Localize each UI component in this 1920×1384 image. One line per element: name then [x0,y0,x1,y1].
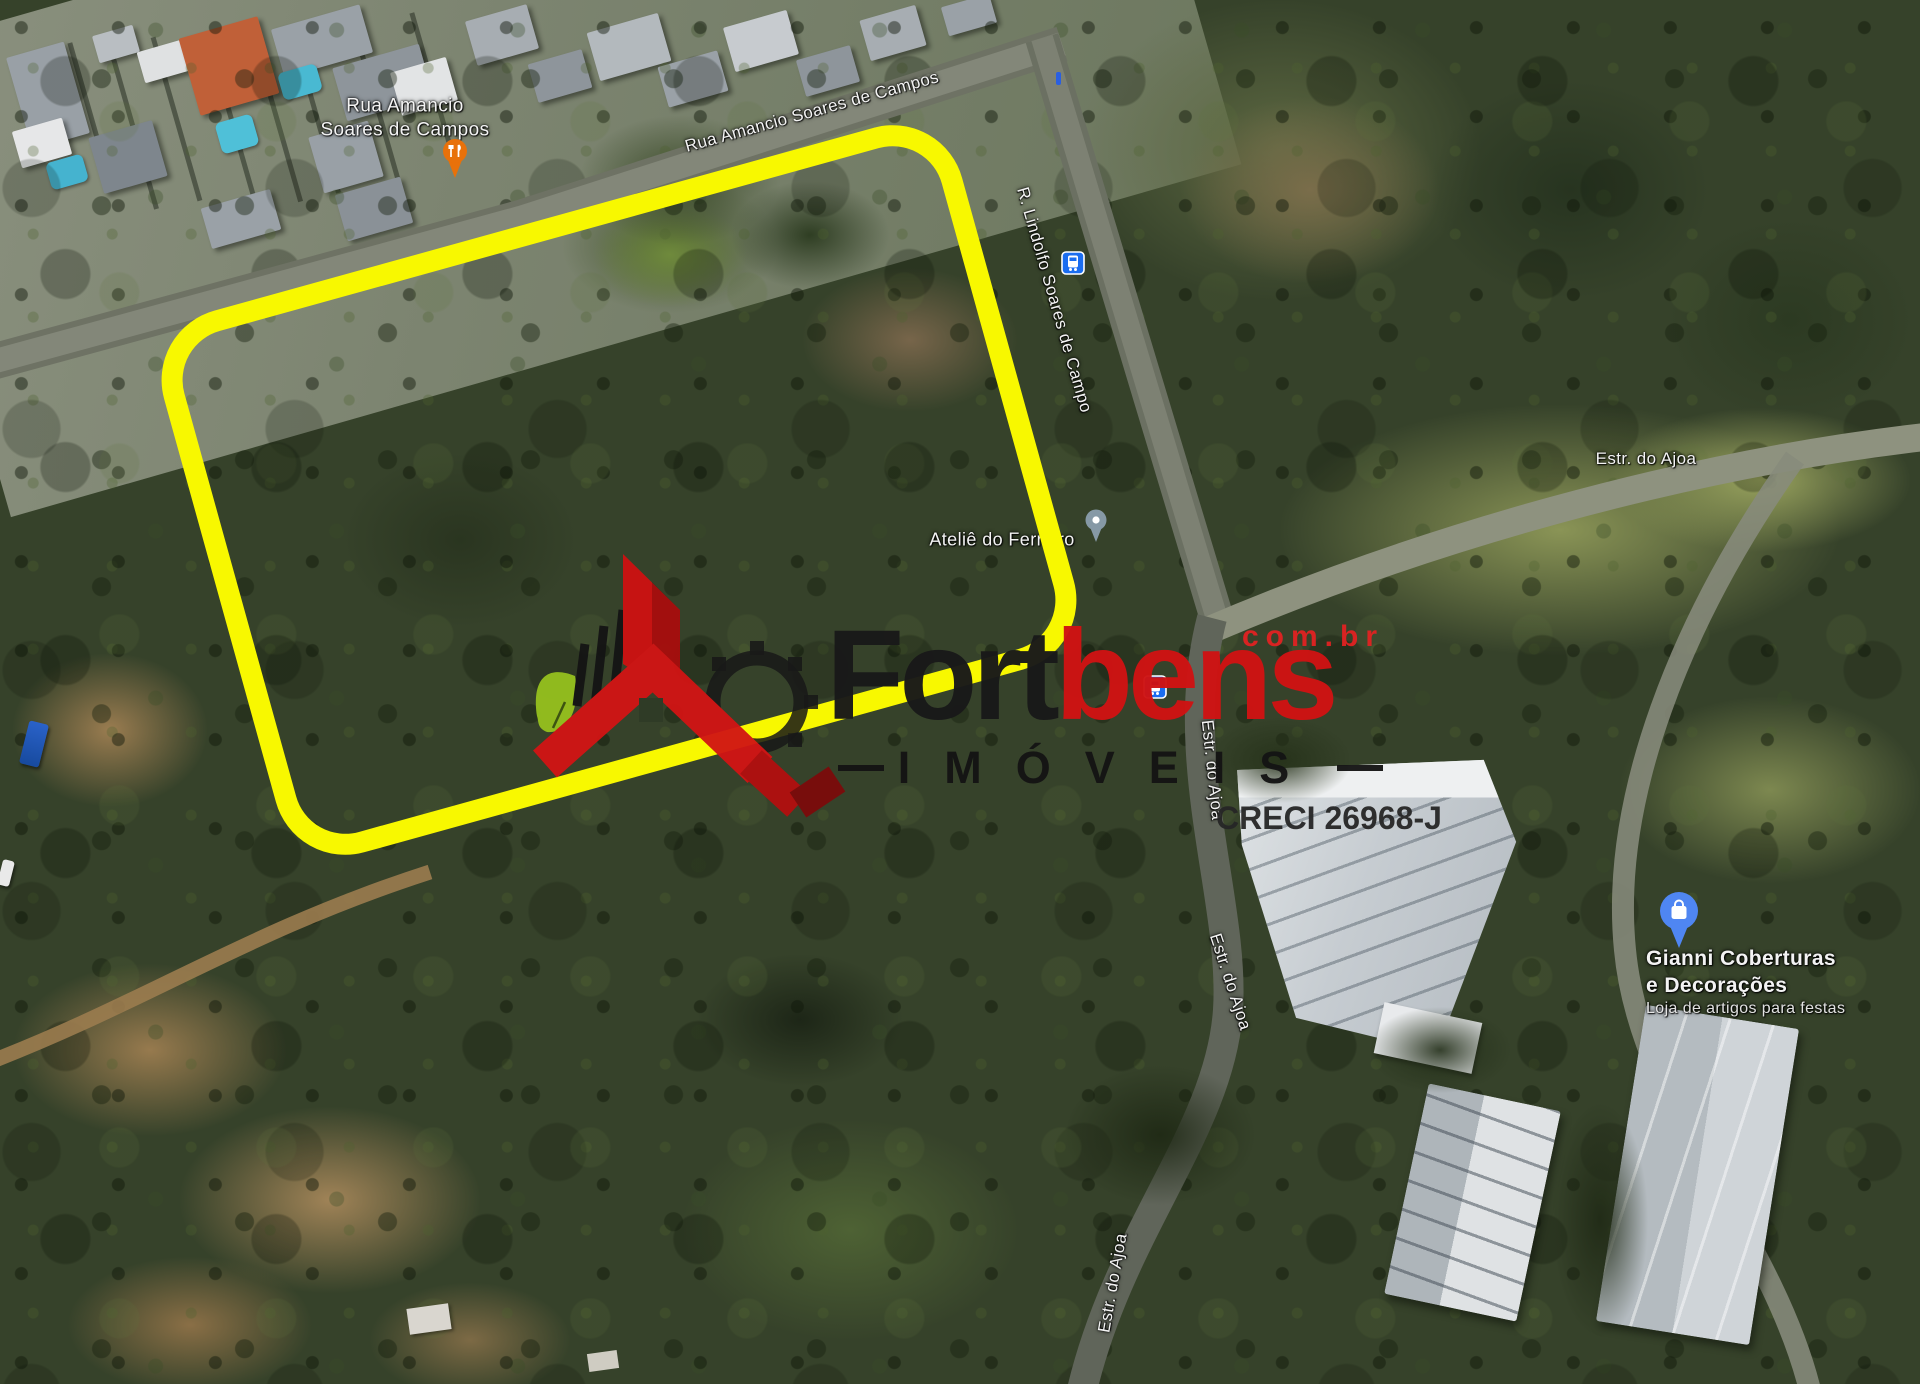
street-label-line: Rua Amancio [320,94,489,118]
restaurant-pin[interactable] [440,138,470,180]
map-marker-dash [1056,72,1061,85]
atelie-pin[interactable] [1083,508,1109,544]
poi-label-line: e Decorações [1646,972,1845,999]
bus-stop-icon[interactable] [1061,251,1085,275]
poi-label-line: Gianni Coberturas [1646,945,1845,972]
poi-label-subtitle: Loja de artigos para festas [1646,1000,1845,1018]
bus-stop-icon[interactable] [1143,675,1167,699]
poi-label-gianni: Gianni Coberturas e Decorações Loja de a… [1646,945,1845,1018]
street-label-rua-amancio-block: Rua Amancio Soares de Campos [320,94,489,142]
map-canvas[interactable]: Rua Amancio Soares de Campos Rua Amancio… [0,0,1920,1384]
street-label-estr-ajoa-east: Estr. do Ajoa [1596,449,1697,469]
gianni-pin[interactable] [1656,890,1702,950]
